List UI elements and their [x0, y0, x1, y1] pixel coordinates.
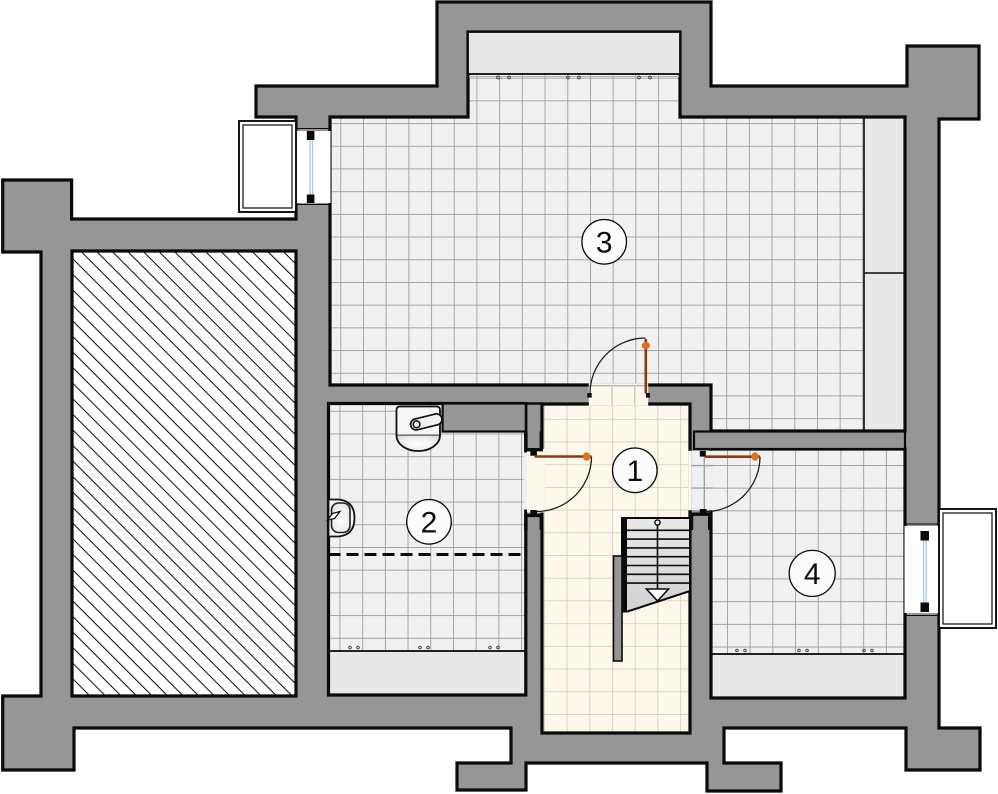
svg-text:3: 3 [596, 226, 613, 259]
svg-text:2: 2 [421, 506, 438, 539]
svg-text:4: 4 [804, 558, 821, 591]
svg-text:1: 1 [626, 455, 643, 488]
